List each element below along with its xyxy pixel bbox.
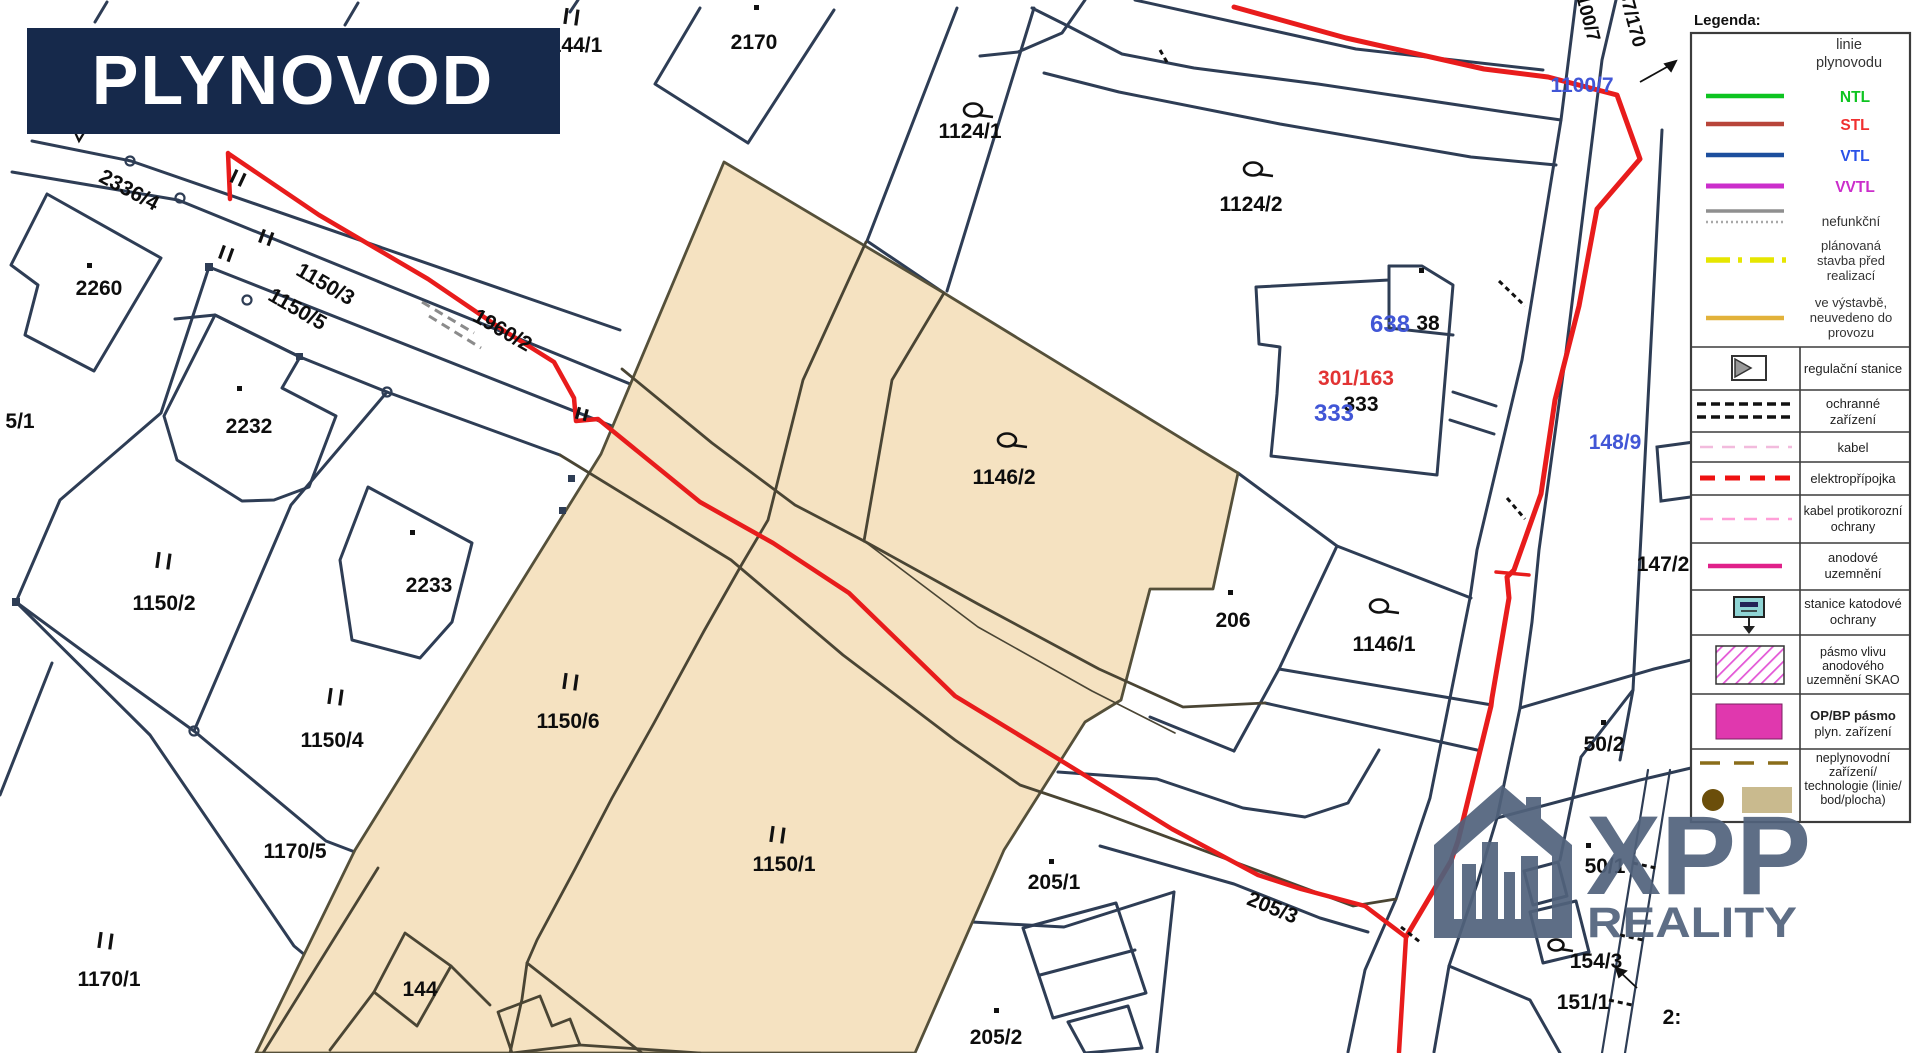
svg-text:stavba před: stavba před [1817, 253, 1885, 268]
svg-text:provozu: provozu [1828, 325, 1874, 340]
svg-text:2233: 2233 [406, 574, 453, 597]
svg-text:VTL: VTL [1840, 148, 1869, 165]
svg-text:1146/2: 1146/2 [972, 466, 1035, 489]
svg-text:elektropřípojka: elektropřípojka [1810, 471, 1896, 486]
svg-text:50/2: 50/2 [1584, 733, 1625, 756]
svg-text:anodového: anodového [1822, 659, 1884, 673]
svg-text:uzemnění: uzemnění [1824, 566, 1881, 581]
svg-text:plánovaná: plánovaná [1821, 238, 1882, 253]
svg-text:neplynovodní: neplynovodní [1816, 751, 1891, 765]
svg-text:333: 333 [1314, 400, 1354, 427]
svg-text:2:: 2: [1663, 1006, 1682, 1029]
svg-text:pásmo vlivu: pásmo vlivu [1820, 645, 1886, 659]
svg-text:ochranné: ochranné [1826, 396, 1880, 411]
svg-text:38: 38 [1416, 312, 1440, 335]
svg-text:ochrany: ochrany [1830, 612, 1877, 627]
svg-text:2170: 2170 [731, 31, 778, 54]
svg-text:1124/2: 1124/2 [1219, 193, 1282, 216]
svg-text:VVTL: VVTL [1835, 179, 1875, 196]
svg-text:stanice katodové: stanice katodové [1804, 596, 1902, 611]
svg-text:neuvedeno do: neuvedeno do [1810, 310, 1892, 325]
svg-text:2232: 2232 [226, 415, 273, 438]
svg-text:plyn. zařízení: plyn. zařízení [1814, 724, 1892, 739]
svg-text:Legenda:: Legenda: [1694, 12, 1761, 29]
svg-text:147/2: 147/2 [1637, 553, 1690, 576]
svg-text:2260: 2260 [76, 277, 123, 300]
svg-text:1146/1: 1146/1 [1352, 633, 1415, 656]
svg-text:nefunkční: nefunkční [1822, 214, 1881, 229]
svg-text:linie: linie [1836, 37, 1862, 53]
svg-text:148/9: 148/9 [1589, 431, 1642, 454]
svg-text:zařízení: zařízení [1830, 412, 1877, 427]
svg-text:205/1: 205/1 [1028, 871, 1081, 894]
svg-text:plynovodu: plynovodu [1816, 55, 1882, 71]
svg-text:5/1: 5/1 [5, 410, 35, 433]
svg-text:zařízení/: zařízení/ [1829, 765, 1877, 779]
svg-text:kabel: kabel [1837, 440, 1868, 455]
svg-text:1150/1: 1150/1 [752, 853, 815, 876]
svg-text:206: 206 [1215, 609, 1250, 632]
svg-text:1150/6: 1150/6 [536, 710, 599, 733]
svg-text:PLYNOVOD: PLYNOVOD [92, 41, 494, 119]
svg-text:638: 638 [1370, 311, 1410, 338]
svg-text:1170/1: 1170/1 [77, 968, 140, 991]
svg-text:205/2: 205/2 [970, 1026, 1023, 1049]
svg-text:1100/7: 1100/7 [1550, 74, 1613, 97]
svg-text:NTL: NTL [1840, 89, 1870, 106]
svg-text:1170/5: 1170/5 [263, 840, 326, 863]
svg-text:OP/BP pásmo: OP/BP pásmo [1810, 708, 1896, 723]
svg-text:144: 144 [402, 978, 437, 1001]
svg-text:uzemnění SKAO: uzemnění SKAO [1806, 673, 1899, 687]
svg-text:kabel protikorozní: kabel protikorozní [1804, 504, 1903, 518]
svg-text:154/3: 154/3 [1570, 950, 1623, 973]
svg-text:ochrany: ochrany [1831, 520, 1876, 534]
svg-text:301/163: 301/163 [1318, 367, 1394, 390]
svg-text:1150/4: 1150/4 [300, 729, 363, 752]
svg-text:anodové: anodové [1828, 550, 1878, 565]
svg-text:1150/2: 1150/2 [132, 592, 195, 615]
svg-text:1124/1: 1124/1 [938, 120, 1001, 143]
svg-text:bod/plocha): bod/plocha) [1820, 793, 1885, 807]
svg-text:REALITY: REALITY [1587, 899, 1797, 947]
svg-text:STL: STL [1840, 117, 1869, 134]
svg-text:151/1: 151/1 [1557, 991, 1610, 1014]
svg-text:ve výstavbě,: ve výstavbě, [1815, 295, 1887, 310]
svg-text:technologie (linie/: technologie (linie/ [1804, 779, 1902, 793]
svg-text:regulační stanice: regulační stanice [1804, 361, 1902, 376]
svg-text:realizací: realizací [1827, 268, 1876, 283]
